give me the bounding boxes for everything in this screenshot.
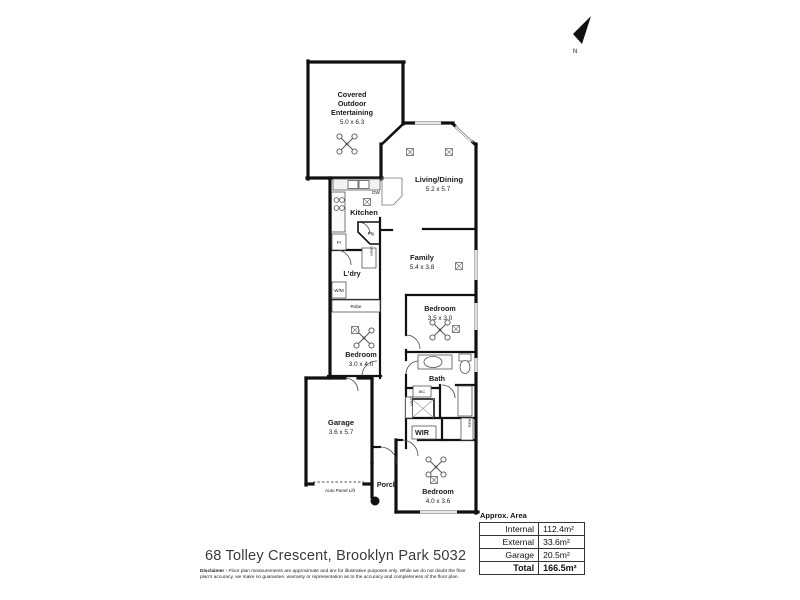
area-row-value: 166.5m² bbox=[539, 562, 585, 575]
door-arcs bbox=[336, 222, 455, 464]
room-label-family: Family bbox=[410, 253, 435, 262]
room-label-bedroom-mid: Bedroom bbox=[424, 304, 456, 313]
kitchen-fixtures bbox=[332, 178, 403, 298]
ceiling-fan-icon bbox=[426, 457, 446, 477]
room-dims-bedroom-left: 3.0 x 4.0 bbox=[349, 361, 374, 368]
svg-text:Outdoor: Outdoor bbox=[338, 99, 367, 108]
dishwasher-label: DW bbox=[372, 190, 380, 195]
area-row-value: 112.4m² bbox=[539, 523, 585, 536]
area-row-label: External bbox=[480, 536, 539, 549]
washing-machine-label: W/M bbox=[334, 288, 344, 293]
bic-label: BIC bbox=[419, 390, 426, 394]
fridge-label: Fr bbox=[337, 240, 342, 245]
disclaimer-label: Disclaimer - bbox=[200, 569, 227, 574]
downlight-icon bbox=[446, 149, 453, 156]
room-label-bedroom-rear: Bedroom bbox=[422, 487, 454, 496]
downlight-icon bbox=[407, 149, 414, 156]
area-table-title: Approx. Area bbox=[480, 511, 585, 520]
robe-label: Robe bbox=[351, 304, 362, 309]
room-dims-living-dining: 5.2 x 5.7 bbox=[426, 186, 451, 193]
disclaimer-text: Floor plan measurements are approximate … bbox=[200, 569, 466, 580]
downlight-icon bbox=[352, 327, 359, 334]
garage-door-label: Auto Panel Lift bbox=[325, 488, 356, 493]
room-dims-garage: 3.6 x 5.7 bbox=[329, 429, 354, 436]
ceiling-fan-icon bbox=[430, 320, 450, 340]
room-label-bedroom-left: Bedroom bbox=[345, 350, 377, 359]
downlight-icon bbox=[431, 477, 438, 484]
downlight-icon bbox=[456, 263, 463, 270]
toilet-cistern-icon bbox=[459, 354, 471, 361]
room-label-living-dining: Living/Dining bbox=[415, 175, 463, 184]
floorplan-drawing: Covered Outdoor Entertaining 5.0 x 6.3 L… bbox=[0, 0, 800, 600]
disclaimer: Disclaimer - Floor plan measurements are… bbox=[200, 569, 466, 581]
room-label-wir: WIR bbox=[415, 428, 430, 437]
room-dims-bedroom-mid: 3.5 x 3.0 bbox=[428, 315, 453, 322]
room-label-bath: Bath bbox=[429, 374, 445, 383]
floorplan-page: Covered Outdoor Entertaining 5.0 x 6.3 L… bbox=[0, 0, 800, 600]
north-arrow-icon bbox=[565, 16, 591, 44]
north-label: N bbox=[573, 49, 577, 55]
north-arrow: N bbox=[565, 16, 591, 55]
room-label-kitchen: Kitchen bbox=[350, 208, 378, 217]
property-address: 68 Tolley Crescent, Brooklyn Park 5032 bbox=[205, 548, 466, 564]
downlight-icon bbox=[364, 199, 371, 206]
area-row-label: Garage bbox=[480, 549, 539, 562]
area-table: Internal 112.4m² External 33.6m² Garage … bbox=[479, 522, 585, 575]
area-row-value: 33.6m² bbox=[539, 536, 585, 549]
area-row-value: 20.5m² bbox=[539, 549, 585, 562]
room-label-laundry: L'dry bbox=[343, 269, 360, 278]
room-dims-family: 5.4 x 3.8 bbox=[410, 264, 435, 271]
interior-walls bbox=[328, 218, 476, 448]
area-row-label: Internal bbox=[480, 523, 539, 536]
svg-text:Entertaining: Entertaining bbox=[331, 108, 373, 117]
room-dims-bedroom-rear: 4.0 x 3.6 bbox=[426, 498, 451, 505]
linen-label: Linen bbox=[410, 396, 414, 405]
basin-icon bbox=[424, 357, 442, 368]
room-dims-entertaining: 5.0 x 6.3 bbox=[340, 119, 365, 126]
ceiling-fan-icon bbox=[337, 134, 357, 154]
toilet-icon bbox=[460, 361, 470, 374]
table-row: External 33.6m² bbox=[480, 536, 585, 549]
table-row: Garage 20.5m² bbox=[480, 549, 585, 562]
table-row: Internal 112.4m² bbox=[480, 523, 585, 536]
linen-label: Linen bbox=[370, 246, 374, 255]
table-row-total: Total 166.5m² bbox=[480, 562, 585, 575]
porch-column bbox=[371, 497, 380, 506]
area-row-label: Total bbox=[480, 562, 539, 575]
area-summary: Approx. Area Internal 112.4m² External 3… bbox=[479, 511, 585, 575]
pantry-label: Pty bbox=[368, 231, 375, 236]
room-label-entertaining: Covered bbox=[338, 90, 367, 99]
room-label-porch: Porch bbox=[377, 480, 397, 489]
room-label-garage: Garage bbox=[328, 418, 354, 427]
downlight-icon bbox=[453, 326, 460, 333]
robe-label: Robe bbox=[468, 418, 472, 427]
